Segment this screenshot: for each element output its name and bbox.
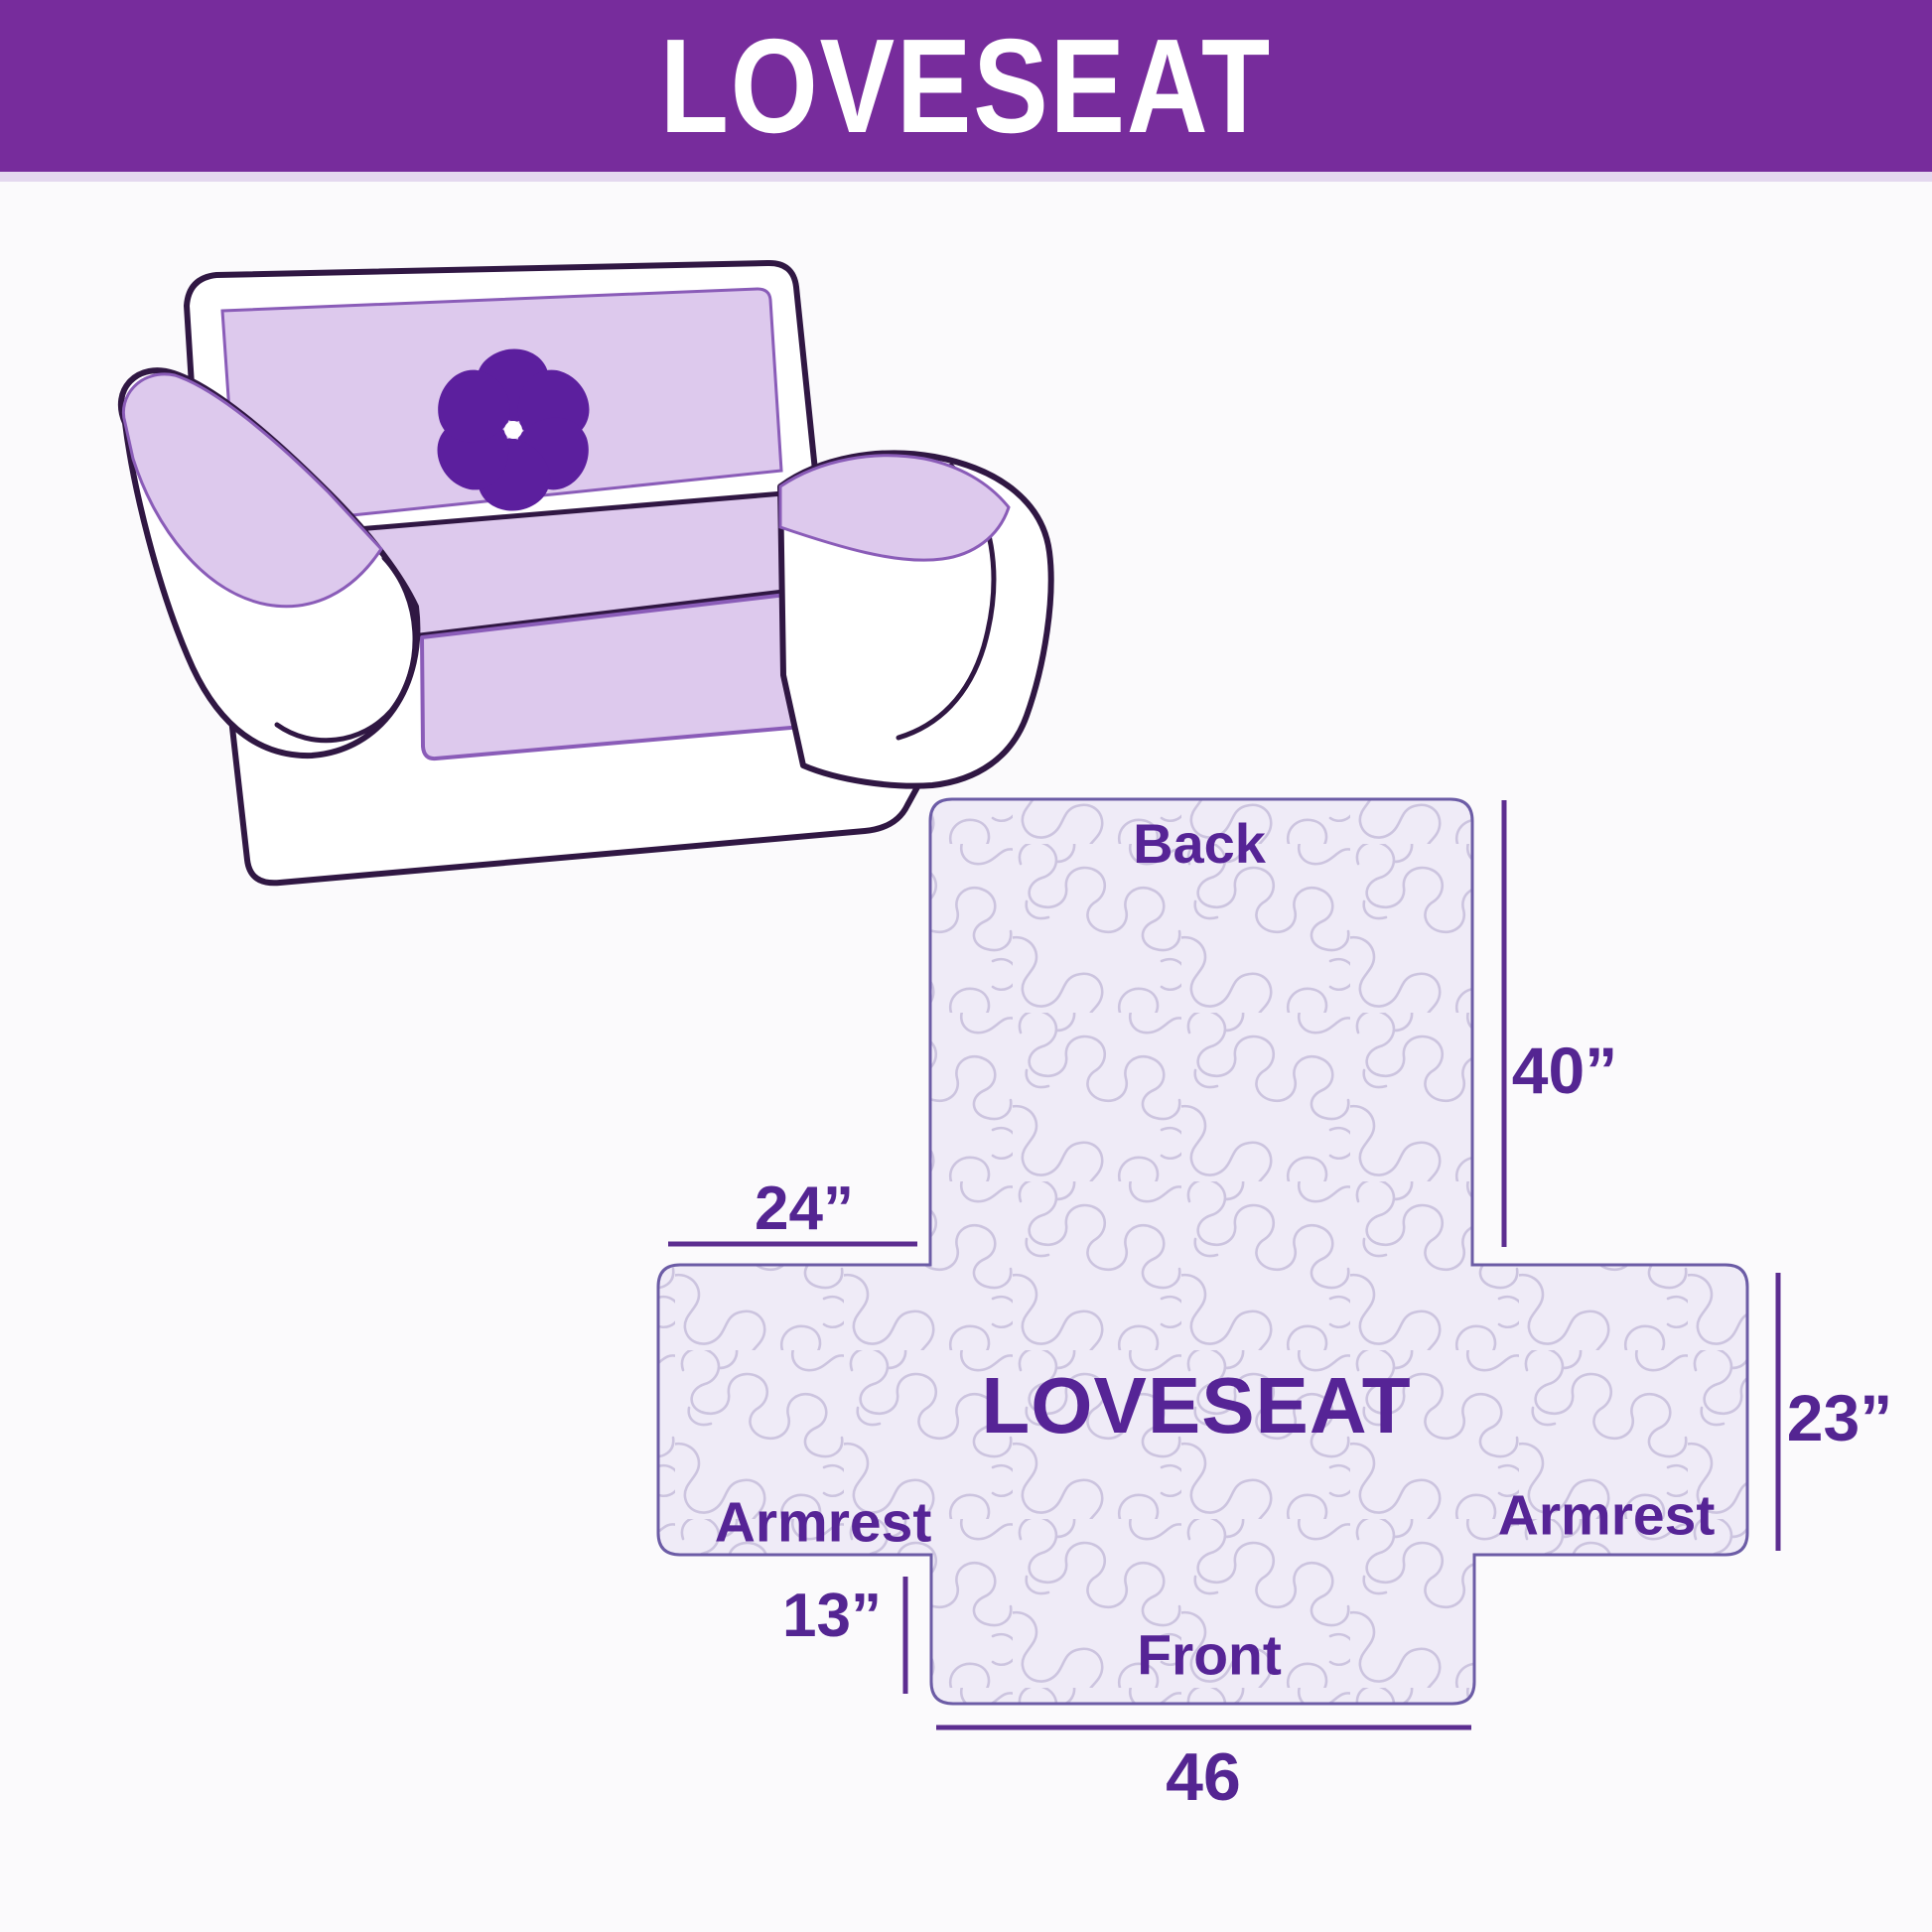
dim-armrest-top-width: 24”: [755, 1178, 854, 1240]
product-name-label: LOVESEAT: [981, 1366, 1411, 1446]
page: LOVESEAT: [0, 0, 1932, 1932]
front-panel-label: Front: [1137, 1628, 1282, 1685]
dim-back-height: 40”: [1512, 1037, 1617, 1103]
dim-front-height: 13”: [782, 1586, 882, 1647]
dim-side-height: 23”: [1787, 1385, 1892, 1450]
cover-diagram: [0, 0, 1932, 1932]
armrest-left-label: Armrest: [715, 1495, 932, 1552]
back-panel-label: Back: [1133, 816, 1266, 872]
cover-outline-shape: [658, 799, 1747, 1704]
armrest-right-label: Armrest: [1498, 1488, 1716, 1545]
dim-front-width: 46: [1166, 1743, 1241, 1811]
